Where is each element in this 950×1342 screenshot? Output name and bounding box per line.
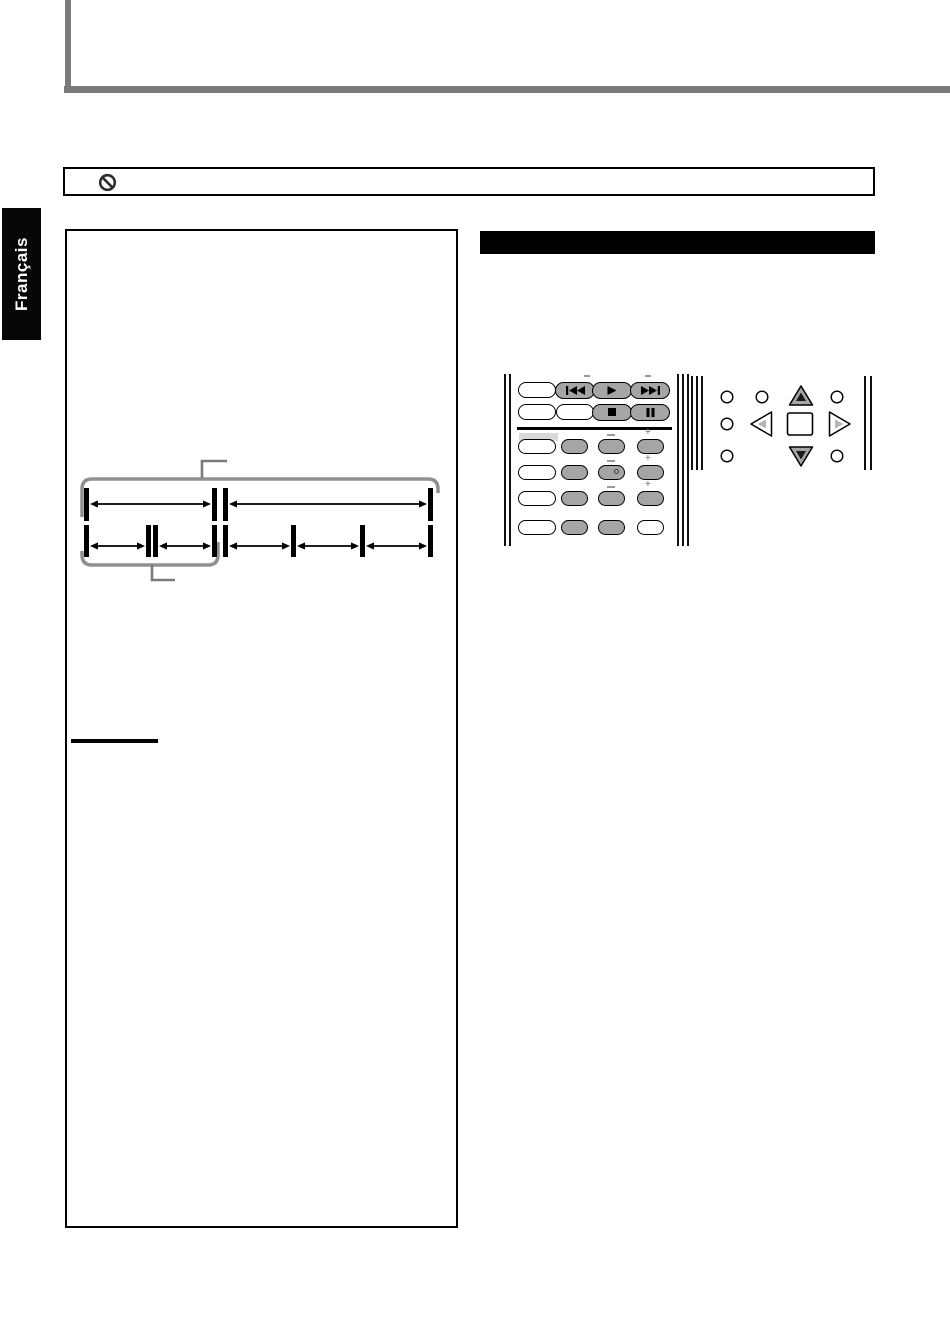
- header-rule-horizontal: [64, 86, 950, 93]
- group-bracket: [82, 479, 438, 517]
- skip-back-button: [555, 382, 595, 399]
- notice-box: [63, 167, 875, 196]
- division-bar: [212, 525, 217, 557]
- remote-round-button: [721, 450, 733, 462]
- remote-button-blank: [518, 382, 556, 398]
- callout-line: [152, 565, 175, 580]
- remote-button-gray: [561, 491, 588, 506]
- division-bar: [360, 525, 365, 557]
- header-rule-vertical: [65, 0, 71, 87]
- arrowhead-right: [419, 542, 427, 549]
- arrowhead-right: [203, 542, 211, 549]
- remote-button-gray: [637, 465, 664, 480]
- pause-icon: [646, 408, 655, 417]
- division-bar: [146, 525, 151, 557]
- minus-mark: [607, 460, 615, 462]
- language-tab-label: Français: [12, 237, 32, 311]
- arrowhead-left: [229, 500, 237, 507]
- remote-button-gray: [598, 465, 625, 480]
- plus-mark: +: [645, 428, 651, 438]
- division-bar: [223, 525, 228, 557]
- content-frame: [65, 229, 458, 1228]
- remote-button-gray: [598, 439, 625, 454]
- remote-round-button: [831, 450, 843, 462]
- play-icon: [607, 386, 617, 395]
- division-bar: [84, 525, 89, 557]
- remote-torn-edge-line: [682, 374, 684, 546]
- division-bar: [428, 525, 433, 557]
- division-bar: [84, 488, 89, 521]
- arrowhead-right: [203, 500, 211, 507]
- remote-button-gray: [637, 439, 664, 454]
- skip-back-icon: [566, 386, 585, 395]
- enter-button: [788, 413, 813, 435]
- division-bar: [291, 525, 296, 557]
- play-button: [592, 382, 632, 399]
- skip-forward-button: [630, 382, 670, 399]
- disc-structure-diagram: [60, 450, 460, 590]
- minus-mark: [607, 434, 615, 436]
- remote-round-button: [721, 391, 733, 403]
- remote-torn-edge-line: [504, 374, 506, 546]
- plus-mark: +: [645, 454, 651, 464]
- pause-button: [630, 404, 670, 421]
- remote-button-gray: [598, 520, 625, 535]
- stop-button: [592, 404, 632, 421]
- arrowhead-right: [137, 542, 145, 549]
- plus-mark: +: [645, 480, 651, 490]
- remote-button-gray: [637, 491, 664, 506]
- heading-underline: [71, 739, 158, 743]
- remote-round-button: [721, 418, 733, 430]
- arrowhead-left: [90, 500, 98, 507]
- remote-button-gray: [561, 465, 588, 480]
- division-bar: [223, 488, 228, 521]
- remote-button-gray: [598, 491, 625, 506]
- remote-button-blank: [556, 404, 594, 420]
- remote-round-button: [831, 391, 843, 403]
- section-header-bar: [480, 231, 875, 254]
- remote-torn-edge-line: [677, 374, 679, 546]
- arrowhead-right: [351, 542, 359, 549]
- arrowhead-left: [90, 542, 98, 549]
- arrowhead-right: [282, 542, 290, 549]
- division-bar: [212, 488, 217, 521]
- remote-button-blank: [518, 491, 556, 506]
- remote-button-blank: [518, 520, 556, 535]
- arrowhead-left: [229, 542, 237, 549]
- remote-button-blank: [518, 404, 556, 420]
- arrowhead-left: [297, 542, 305, 549]
- remote-button-gray: [561, 520, 588, 535]
- remote-round-button: [756, 391, 768, 403]
- remote-torn-edge-line: [509, 374, 511, 546]
- tactile-dot-mark: [614, 469, 619, 474]
- minus-mark: [607, 486, 615, 488]
- callout-line: [202, 461, 227, 478]
- remote-button-blank: [518, 439, 556, 454]
- arrowhead-left: [159, 542, 167, 549]
- arrowhead-right: [419, 500, 427, 507]
- language-tab: Français: [2, 208, 41, 340]
- arrowhead-left: [366, 542, 374, 549]
- minus-mark: [645, 375, 651, 377]
- prohibition-icon: [98, 173, 117, 192]
- remote-button-gray: [561, 439, 588, 454]
- remote-button-blank: [518, 465, 556, 480]
- division-bar: [428, 488, 433, 521]
- stop-icon: [608, 408, 616, 416]
- minus-mark: [584, 375, 590, 377]
- division-bar: [153, 525, 158, 557]
- cursor-pad: [686, 374, 872, 474]
- skip-forward-icon: [641, 386, 660, 395]
- remote-button-blank: [637, 520, 664, 535]
